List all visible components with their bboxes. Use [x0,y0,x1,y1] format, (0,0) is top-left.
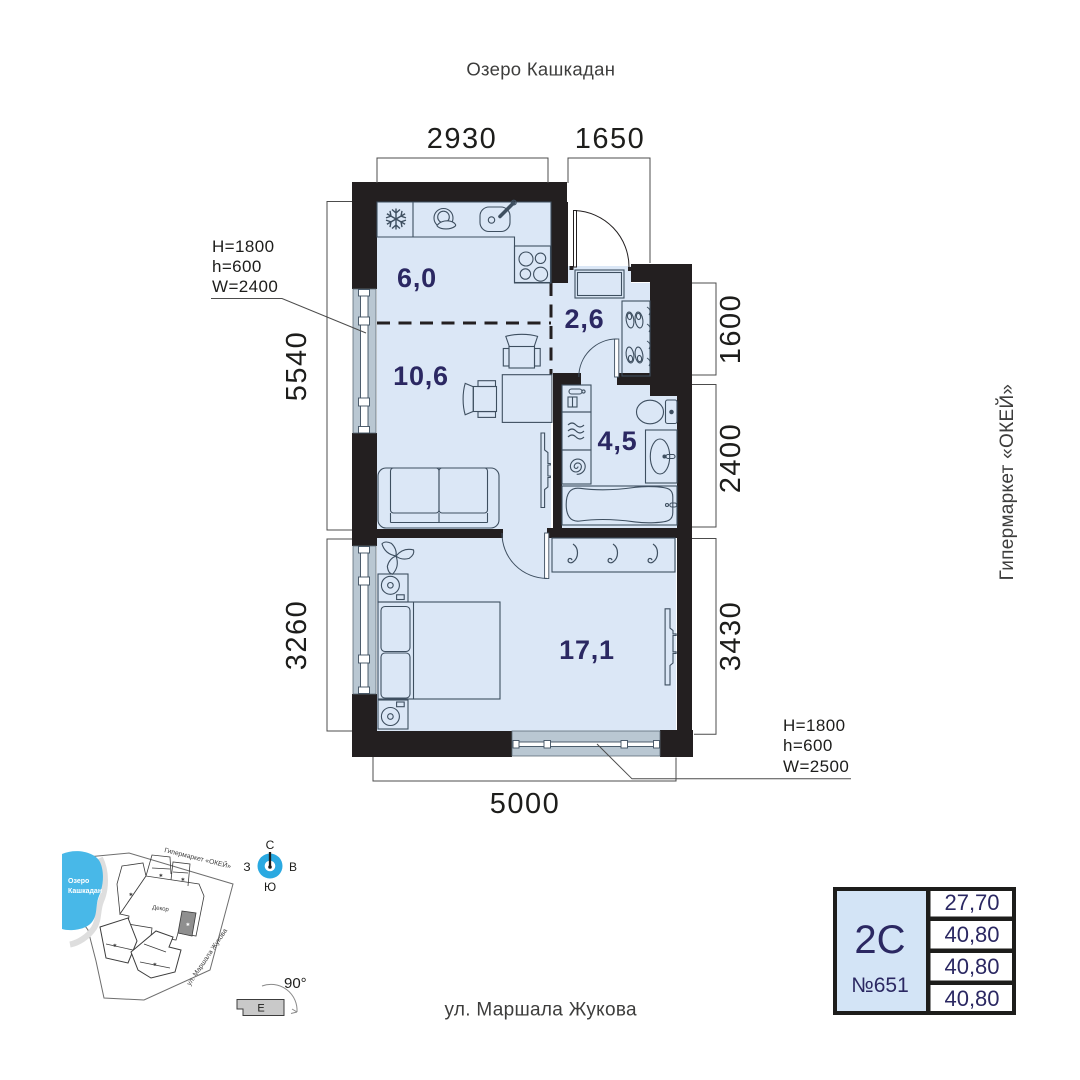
svg-text:H=1800: H=1800 [783,716,845,735]
svg-text:40,80: 40,80 [944,986,999,1011]
svg-text:40,80: 40,80 [944,922,999,947]
svg-text:10,6: 10,6 [393,361,449,391]
svg-text:W=2400: W=2400 [212,277,278,296]
svg-text:W=2500: W=2500 [783,757,849,776]
svg-text:1650: 1650 [575,123,646,155]
svg-text:h=600: h=600 [212,257,262,276]
svg-text:Кашкадан: Кашкадан [68,888,102,895]
svg-text:Ю: Ю [264,880,276,894]
svg-text:3430: 3430 [715,601,747,672]
svg-text:№651: №651 [851,974,909,997]
svg-text:✱: ✱ [153,962,157,967]
svg-text:5540: 5540 [281,331,313,402]
svg-text:Озеро: Озеро [68,878,89,885]
svg-text:Озеро Кашкадан: Озеро Кашкадан [466,59,615,80]
svg-text:6,0: 6,0 [397,263,437,293]
svg-text:4,5: 4,5 [598,426,638,456]
svg-text:5000: 5000 [490,788,561,820]
svg-text:✱: ✱ [186,922,190,927]
svg-text:40,80: 40,80 [944,954,999,979]
svg-text:2930: 2930 [427,123,498,155]
svg-text:H=1800: H=1800 [212,237,274,256]
svg-text:2,6: 2,6 [565,304,605,334]
svg-text:2С: 2С [854,918,905,962]
svg-text:ул. Маршала Жукова: ул. Маршала Жукова [444,1000,637,1021]
svg-text:90°: 90° [284,975,307,992]
svg-text:3260: 3260 [281,600,313,671]
svg-text:1600: 1600 [715,294,747,365]
svg-text:2400: 2400 [715,423,747,494]
svg-text:Гипермаркет «ОКЕЙ»: Гипермаркет «ОКЕЙ» [996,384,1018,581]
svg-text:✱: ✱ [113,943,117,948]
svg-text:✱: ✱ [129,892,133,897]
svg-text:Е: Е [257,1003,264,1015]
svg-text:17,1: 17,1 [559,635,615,665]
svg-text:З: З [243,860,250,874]
svg-text:✱: ✱ [159,873,163,878]
svg-text:27,70: 27,70 [944,890,999,915]
svg-text:В: В [289,860,297,874]
svg-text:С: С [266,838,275,852]
svg-text:h=600: h=600 [783,736,833,755]
svg-text:✱: ✱ [181,877,185,882]
